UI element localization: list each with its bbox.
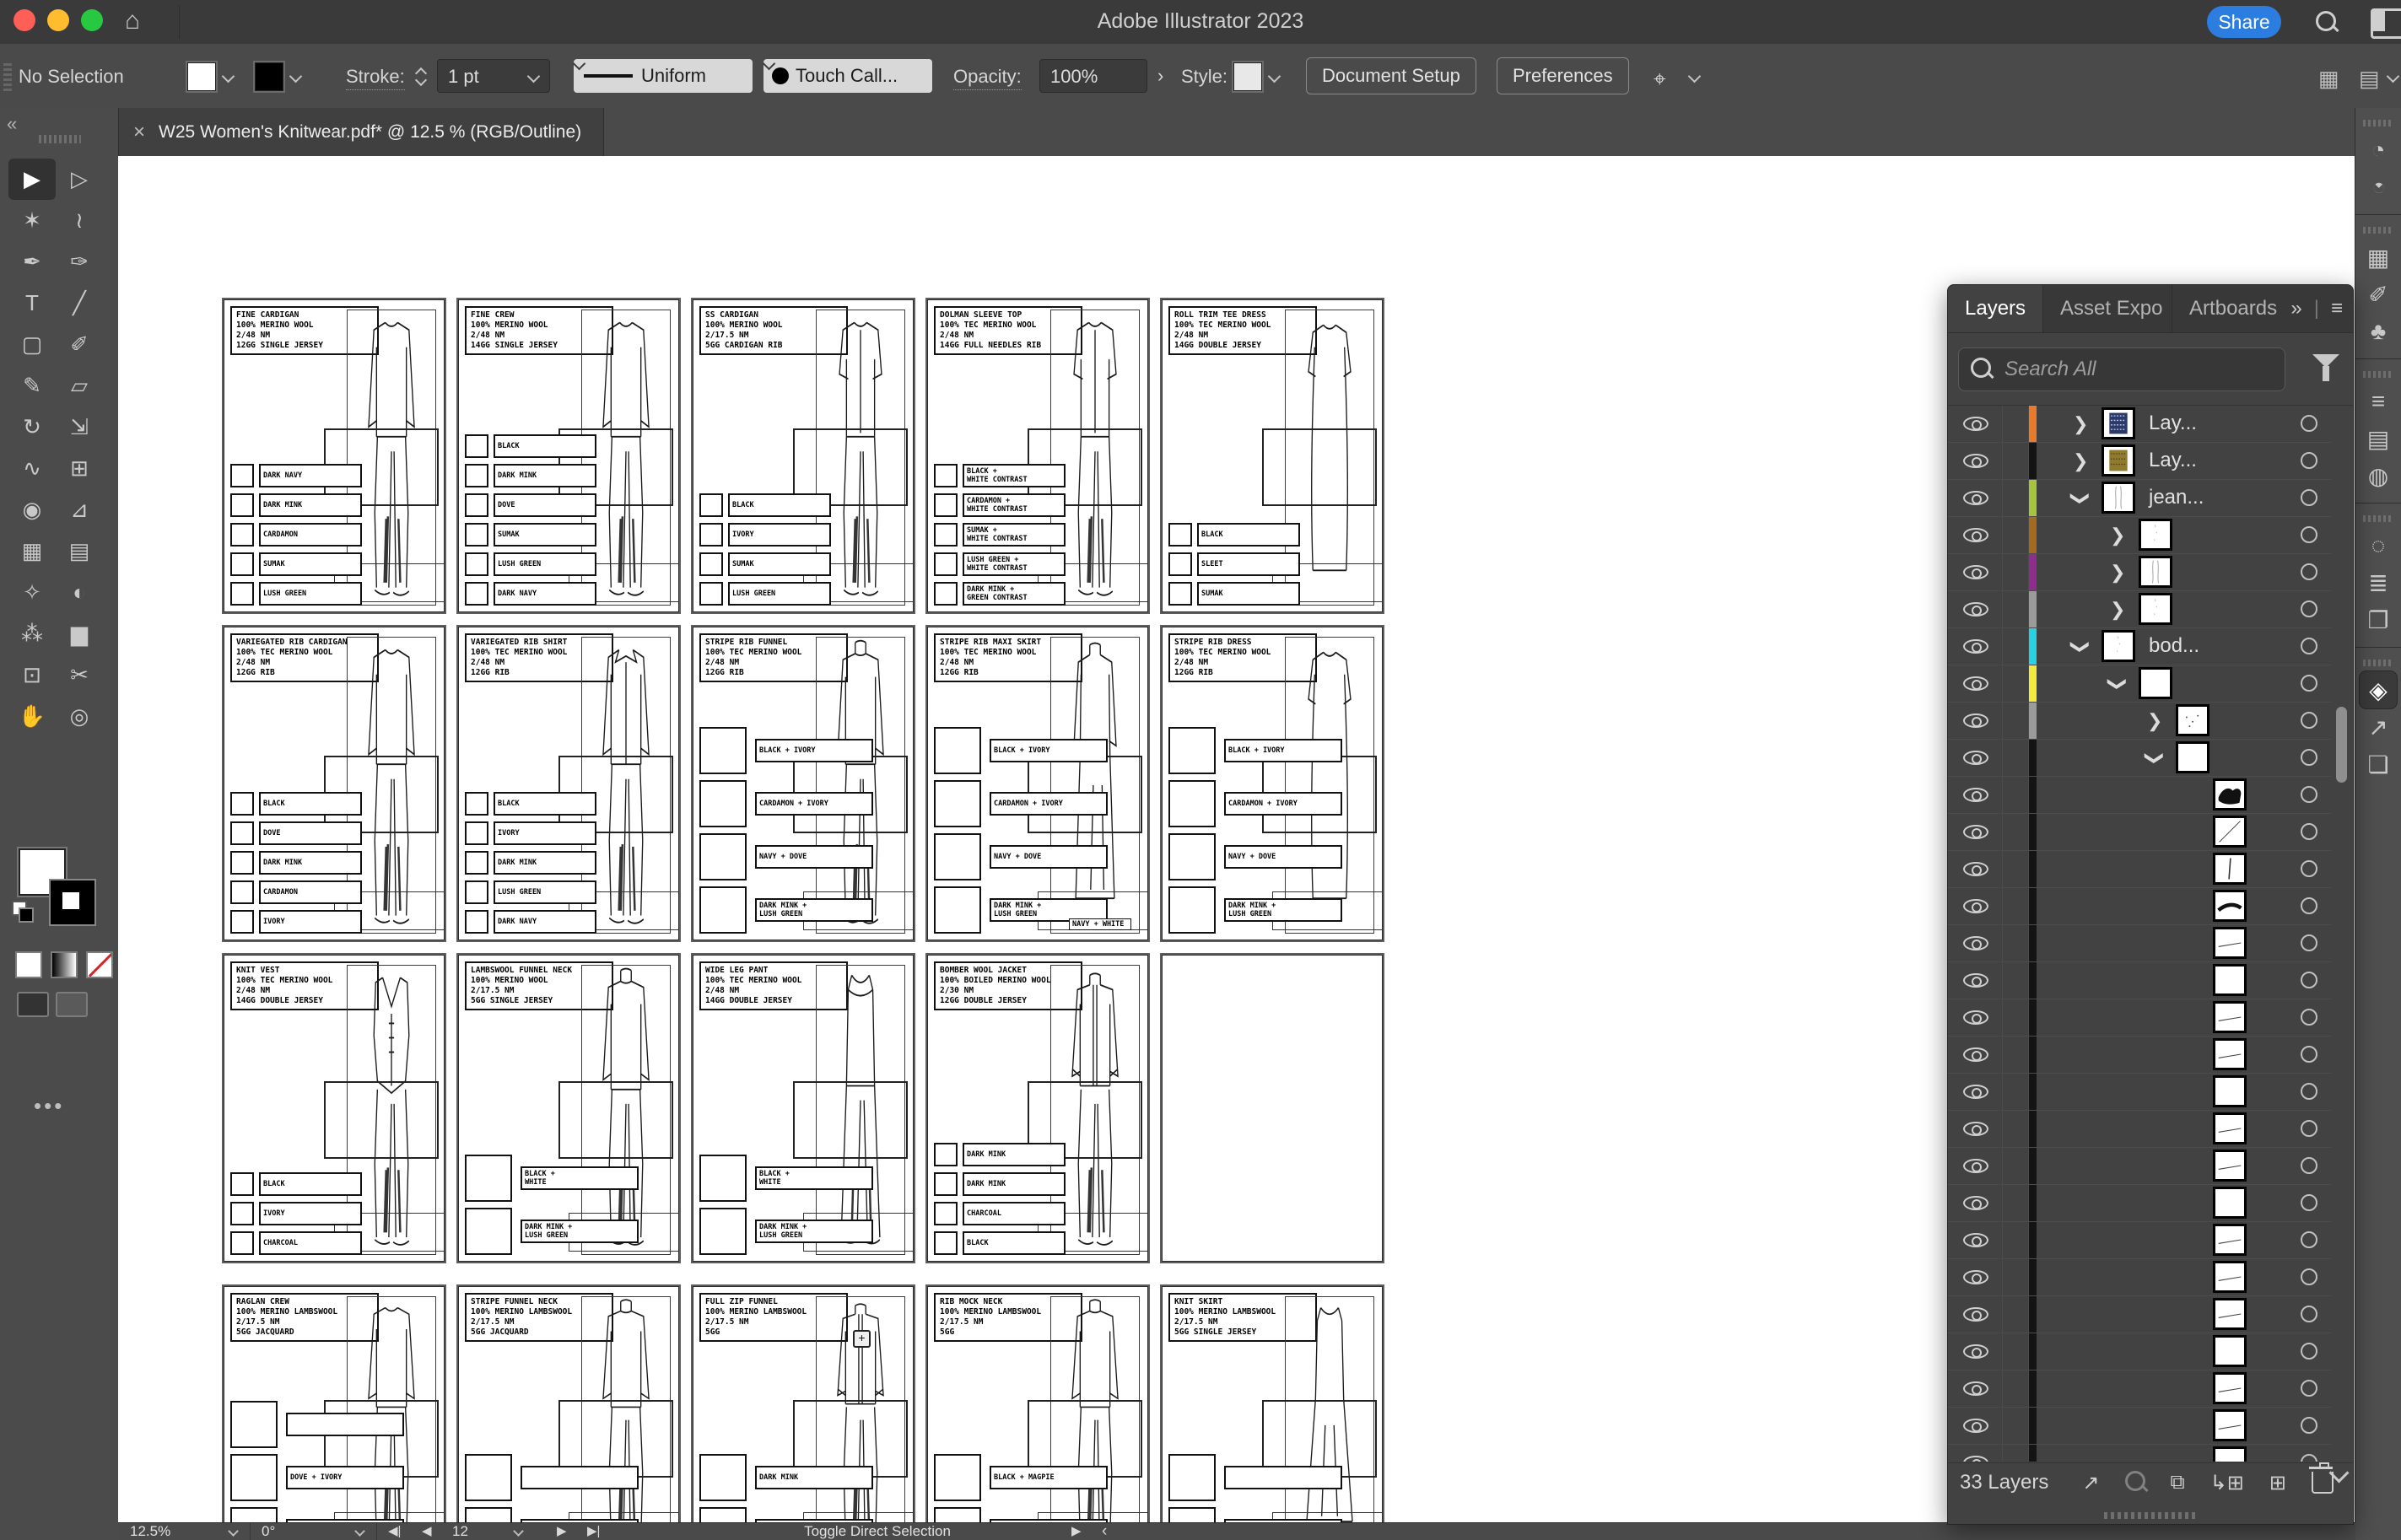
- workspace-switcher-icon[interactable]: ▤: [2359, 66, 2380, 92]
- layer-target-icon[interactable]: [2301, 1194, 2317, 1211]
- layer-row[interactable]: [1948, 1185, 2331, 1222]
- color-swatch: [465, 434, 488, 458]
- zoom-tool-icon[interactable]: ◎: [56, 696, 103, 737]
- status-play-icon[interactable]: ▶: [1071, 1523, 1082, 1540]
- arrange-documents-icon[interactable]: ▦: [2318, 66, 2339, 92]
- layer-target-icon[interactable]: [2301, 1417, 2317, 1434]
- artboard-card[interactable]: [1160, 953, 1384, 1263]
- artboard-tool-icon[interactable]: ⊡: [8, 654, 56, 696]
- gradient-panel-icon[interactable]: ▤: [2360, 420, 2397, 457]
- expand-arrow-icon[interactable]: ❯: [2147, 710, 2162, 732]
- color-label: BLACK: [963, 1231, 1066, 1255]
- layer-color-bar: [2029, 1222, 2037, 1258]
- artboard-card[interactable]: BOMBER WOOL JACKET100% BOILED MERINO WOO…: [925, 953, 1150, 1263]
- layer-thumbnail[interactable]: [2176, 741, 2209, 773]
- stroke-label[interactable]: Stroke:: [346, 66, 405, 90]
- layer-target-icon[interactable]: [2301, 526, 2317, 543]
- visibility-eye-icon[interactable]: [1963, 862, 1988, 876]
- visibility-eye-icon[interactable]: [1963, 417, 1988, 431]
- layer-target-icon[interactable]: [2301, 1083, 2317, 1100]
- layer-thumbnail[interactable]: [2213, 890, 2247, 922]
- layer-thumbnail[interactable]: [2213, 964, 2247, 996]
- artboard-card[interactable]: FULL ZIP FUNNEL100% MERINO LAMBSWOOL2/17…: [691, 1284, 915, 1540]
- color-label-line: LUSH GREEN +: [967, 556, 1061, 564]
- layers-panel-icon[interactable]: ◈: [2360, 671, 2397, 708]
- artboards-panel-icon[interactable]: ❏: [2360, 746, 2397, 783]
- colorway-row: DARK NAVY: [465, 910, 596, 934]
- opacity-expand-icon[interactable]: ›: [1157, 67, 1163, 84]
- layers-footer: 33 Layers ↗ ⧉ ↳⊞ ⊞: [1948, 1462, 2353, 1502]
- edit-toolbar-icon[interactable]: •••: [34, 1093, 64, 1119]
- layer-target-icon[interactable]: [2301, 563, 2317, 580]
- artboard-caret-icon[interactable]: [515, 1527, 523, 1536]
- layer-color-bar: [2029, 1408, 2037, 1444]
- asset-export-panel-icon[interactable]: ↗: [2360, 708, 2397, 746]
- visibility-eye-icon[interactable]: [1963, 1344, 1988, 1359]
- layer-target-icon[interactable]: [2301, 712, 2317, 729]
- perspective-grid-tool-icon[interactable]: ⊿: [56, 489, 103, 530]
- expand-arrow-icon[interactable]: ❯: [2110, 525, 2125, 547]
- stroke-weight-caret-icon[interactable]: [528, 72, 538, 82]
- preferences-button[interactable]: Preferences: [1497, 57, 1629, 94]
- layer-target-icon[interactable]: [2301, 1009, 2317, 1026]
- color-label: DARK NAVY: [494, 910, 596, 934]
- layer-row[interactable]: ❯jean...: [1948, 480, 2331, 517]
- transparency-panel-icon[interactable]: ◍: [2360, 457, 2397, 494]
- tools-grip[interactable]: [39, 135, 81, 143]
- layer-target-icon[interactable]: [2301, 1046, 2317, 1063]
- layer-name[interactable]: jean...: [2149, 486, 2204, 509]
- layer-target-icon[interactable]: [2301, 452, 2317, 469]
- delete-layer-icon[interactable]: [2312, 1472, 2334, 1494]
- colorway-list: DARK MINK +LUSH GREENBLACK +WHITE: [465, 1155, 639, 1255]
- layer-row[interactable]: [1948, 1111, 2331, 1148]
- color-label: NAVY + DOVE: [990, 845, 1108, 869]
- search-icon[interactable]: [2316, 11, 2336, 31]
- layer-target-icon[interactable]: [2301, 1157, 2317, 1174]
- stroke-weight-stepper[interactable]: [415, 64, 427, 89]
- layer-row[interactable]: [1948, 999, 2331, 1037]
- artboard-card[interactable]: RAGLAN CREW100% MERINO LAMBSWOOL2/17.5 N…: [222, 1284, 446, 1540]
- artboard-card[interactable]: RIB MOCK NECK100% MERINO LAMBSWOOL2/17.5…: [925, 1284, 1150, 1540]
- layer-row[interactable]: [1948, 1370, 2331, 1408]
- layer-thumbnail[interactable]: [2139, 519, 2172, 551]
- color-label-line: WHITE: [525, 1178, 634, 1187]
- colorway-row: DARK MINK +GREEN CONTRAST: [934, 582, 1066, 606]
- layer-name[interactable]: Lay...: [2149, 449, 2197, 472]
- tab-close-icon[interactable]: ×: [133, 121, 145, 144]
- dock-grip[interactable]: [2363, 515, 2393, 522]
- layer-target-icon[interactable]: [2301, 1306, 2317, 1322]
- layer-target-icon[interactable]: [2301, 934, 2317, 951]
- color-guide-panel-icon[interactable]: ◔: [2352, 161, 2401, 213]
- layer-thumbnail[interactable]: [2102, 482, 2135, 514]
- layer-row[interactable]: ❯Lay...: [1948, 406, 2331, 443]
- visibility-eye-icon[interactable]: [1963, 713, 1988, 728]
- visibility-eye-icon[interactable]: [1963, 1307, 1988, 1322]
- stroke-caret-icon[interactable]: [290, 72, 300, 82]
- pattern-overlay-box: [1262, 428, 1377, 506]
- artboard-card[interactable]: DOLMAN SLEEVE TOP100% TEC MERINO WOOL2/4…: [925, 298, 1150, 614]
- layer-thumbnail[interactable]: [2213, 1112, 2247, 1144]
- visibility-eye-icon[interactable]: [1963, 1233, 1988, 1247]
- artboard-card[interactable]: ROLL TRIM TEE DRESS100% TEC MERINO WOOL2…: [1160, 298, 1384, 614]
- transform-panel-icon[interactable]: ❐: [2360, 601, 2397, 638]
- workspace-caret-icon[interactable]: [2388, 72, 2398, 82]
- layer-thumbnail[interactable]: [2213, 1372, 2247, 1404]
- layer-row[interactable]: [1948, 1333, 2331, 1370]
- visibility-eye-icon[interactable]: [1963, 1456, 1988, 1462]
- symbols-panel-icon[interactable]: ♣: [2360, 313, 2397, 350]
- layer-target-icon[interactable]: [2301, 675, 2317, 692]
- color-label: DARK MINK +LUSH GREEN: [1224, 898, 1342, 922]
- visibility-eye-icon[interactable]: [1963, 973, 1988, 988]
- color-label: DARK MINK +LUSH GREEN: [755, 1220, 873, 1243]
- filter-icon[interactable]: [2312, 354, 2339, 368]
- artboard-card[interactable]: STRIPE RIB DRESS100% TEC MERINO WOOL2/48…: [1160, 625, 1384, 942]
- rectangle-tool-icon[interactable]: ▢: [8, 324, 56, 365]
- variable-width-profile[interactable]: Uniform: [574, 59, 753, 93]
- layer-thumbnail[interactable]: [2213, 1075, 2247, 1107]
- layer-thumbnail[interactable]: [2176, 704, 2209, 736]
- visibility-eye-icon[interactable]: [1963, 491, 1988, 505]
- tab-layers[interactable]: Layers: [1948, 285, 2043, 332]
- artboard-card[interactable]: STRIPE RIB FUNNEL100% TEC MERINO WOOL2/4…: [691, 625, 915, 942]
- blend-tool-icon[interactable]: ◐: [56, 572, 103, 613]
- layer-thumbnail[interactable]: [2213, 816, 2247, 848]
- layer-thumbnail[interactable]: [2213, 1409, 2247, 1441]
- zoom-caret-icon[interactable]: [229, 1527, 238, 1536]
- shaper-tool-icon[interactable]: ✎: [8, 365, 56, 407]
- layer-row[interactable]: ❯: [1948, 517, 2331, 554]
- layer-row[interactable]: [1948, 814, 2331, 851]
- color-swatch: [934, 582, 958, 606]
- previous-artboard-icon[interactable]: ◀: [422, 1523, 432, 1540]
- layer-row[interactable]: [1948, 1296, 2331, 1333]
- line-segment-tool-icon[interactable]: ╱: [56, 283, 103, 324]
- color-label: BLACK +WHITE CONTRAST: [963, 464, 1066, 487]
- drawing-mode-buttons: [17, 992, 88, 1017]
- layers-scrollbar-thumb[interactable]: [2336, 707, 2347, 783]
- expand-arrow-icon[interactable]: ❯: [2110, 599, 2125, 621]
- direct-selection-tool-icon[interactable]: ▷: [56, 159, 103, 200]
- lasso-tool-icon[interactable]: ≀: [56, 200, 103, 241]
- expand-arrow-icon[interactable]: ❯: [2110, 562, 2125, 584]
- tab-asset-expo[interactable]: Asset Expo: [2043, 285, 2172, 332]
- layer-row[interactable]: ❯: [1948, 665, 2331, 703]
- layer-target-icon[interactable]: [2301, 823, 2317, 840]
- next-artboard-icon[interactable]: ▶: [557, 1523, 567, 1540]
- collapse-panel-icon[interactable]: «: [7, 113, 15, 135]
- collapse-arrow-icon[interactable]: ❯: [2107, 676, 2129, 692]
- column-graph-tool-icon[interactable]: ▆: [56, 613, 103, 654]
- panel-expand-icon[interactable]: »: [2290, 297, 2301, 320]
- layer-target-icon[interactable]: [2301, 600, 2317, 617]
- expand-plus-icon[interactable]: +: [853, 1330, 871, 1348]
- visibility-eye-icon[interactable]: [1963, 676, 1988, 691]
- layer-thumbnail[interactable]: [2213, 1224, 2247, 1256]
- color-swatch: [699, 727, 747, 774]
- color-label: BLACK +WHITE: [521, 1166, 639, 1190]
- opacity-label[interactable]: Opacity:: [953, 66, 1022, 90]
- css-properties-panel-icon[interactable]: ◌: [2360, 527, 2397, 564]
- layer-target-icon[interactable]: [2301, 415, 2317, 432]
- type-tool-icon[interactable]: T: [8, 283, 56, 324]
- layer-row[interactable]: [1948, 1408, 2331, 1445]
- fill-caret-icon[interactable]: [223, 72, 233, 82]
- layer-row[interactable]: ❯: [1948, 703, 2331, 740]
- artboard-card[interactable]: VARIEGATED RIB CARDIGAN100% TEC MERINO W…: [222, 625, 446, 942]
- layer-target-icon[interactable]: [2301, 786, 2317, 803]
- colorway-row: IVORY: [465, 821, 596, 845]
- zoom-level[interactable]: 12.5%: [130, 1523, 170, 1540]
- first-artboard-icon[interactable]: ◀|: [388, 1523, 401, 1540]
- expand-arrow-icon[interactable]: ❯: [2073, 413, 2088, 435]
- visibility-eye-icon[interactable]: [1963, 528, 1988, 542]
- layer-row[interactable]: [1948, 851, 2331, 888]
- none-button[interactable]: [86, 951, 113, 978]
- select-similar-caret-icon[interactable]: [1689, 72, 1699, 82]
- artboard-card[interactable]: VARIEGATED RIB SHIRT100% TEC MERINO WOOL…: [456, 625, 681, 942]
- symbol-sprayer-tool-icon[interactable]: ⁂: [8, 613, 56, 654]
- visibility-eye-icon[interactable]: [1963, 602, 1988, 617]
- visibility-eye-icon[interactable]: [1963, 1085, 1988, 1099]
- visibility-eye-icon[interactable]: [1963, 454, 1988, 468]
- layer-thumbnail[interactable]: [2102, 407, 2135, 439]
- color-label-line: CHARCOAL: [967, 1209, 1061, 1218]
- select-similar-icon[interactable]: ⌖: [1654, 66, 1666, 93]
- style-caret-icon[interactable]: [1269, 72, 1279, 82]
- artboard-card[interactable]: STRIPE RIB MAXI SKIRT100% TEC MERINO WOO…: [925, 625, 1150, 942]
- visibility-eye-icon[interactable]: [1963, 1122, 1988, 1136]
- share-button[interactable]: Share: [2207, 6, 2281, 38]
- layer-color-bar: [2029, 777, 2037, 813]
- layer-row[interactable]: ❯: [1948, 591, 2331, 628]
- layer-name[interactable]: Lay...: [2149, 412, 2197, 435]
- layer-thumbnail[interactable]: [2102, 630, 2135, 662]
- layer-name[interactable]: bod...: [2149, 634, 2199, 658]
- tab-artboards[interactable]: Artboards: [2172, 285, 2295, 332]
- layer-thumbnail[interactable]: [2213, 853, 2247, 885]
- color-button[interactable]: [15, 951, 42, 978]
- curvature-tool-icon[interactable]: ✑: [56, 241, 103, 283]
- status-readout[interactable]: Toggle Direct Selection: [709, 1523, 1046, 1540]
- layer-row[interactable]: ❯: [1948, 740, 2331, 777]
- visibility-eye-icon[interactable]: [1963, 639, 1988, 654]
- align-panel-icon[interactable]: ≣: [2360, 564, 2397, 601]
- layer-row[interactable]: [1948, 925, 2331, 962]
- layer-target-icon[interactable]: [2301, 1120, 2317, 1137]
- visibility-eye-icon[interactable]: [1963, 1270, 1988, 1284]
- hand-tool-icon[interactable]: ✋: [8, 696, 56, 737]
- layer-thumbnail[interactable]: [2213, 1335, 2247, 1367]
- color-label-line: IVORY: [263, 918, 358, 926]
- dock-grip[interactable]: [2363, 660, 2393, 666]
- gradient-tool-icon[interactable]: ▤: [56, 530, 103, 572]
- color-label-line: BLACK: [498, 442, 592, 450]
- layer-thumbnail[interactable]: [2139, 667, 2172, 699]
- expand-arrow-icon[interactable]: ❯: [2073, 450, 2088, 472]
- layer-target-icon[interactable]: [2301, 1268, 2317, 1285]
- color-swatch: [465, 582, 488, 606]
- artboard-card[interactable]: FINE CREW100% MERINO WOOL2/48 NM14GG SIN…: [456, 298, 681, 614]
- artboard-card[interactable]: KNIT SKIRT100% MERINO LAMBSWOOL2/17.5 NM…: [1160, 1284, 1384, 1540]
- colorway-row: BLACK: [1168, 523, 1300, 547]
- style-swatch[interactable]: [1233, 62, 1262, 91]
- last-artboard-icon[interactable]: ▶|: [587, 1523, 600, 1540]
- color-swatch: [699, 833, 747, 880]
- document-tab[interactable]: × W25 Women's Knitwear.pdf* @ 12.5 % (RG…: [118, 108, 604, 156]
- eraser-tool-icon[interactable]: ▱: [56, 365, 103, 407]
- artboard-card[interactable]: WIDE LEG PANT100% TEC MERINO WOOL2/48 NM…: [691, 953, 915, 1263]
- make-mask-icon[interactable]: ⧉: [2171, 1471, 2185, 1494]
- layer-target-icon[interactable]: [2301, 489, 2317, 506]
- document-setup-button[interactable]: Document Setup: [1306, 57, 1476, 94]
- visibility-eye-icon[interactable]: [1963, 1047, 1988, 1062]
- locate-object-icon[interactable]: [2125, 1471, 2145, 1491]
- visibility-eye-icon[interactable]: [1963, 1010, 1988, 1025]
- color-swatch: [699, 1208, 747, 1255]
- selection-status: No Selection: [19, 66, 124, 88]
- stroke-swatch[interactable]: [49, 879, 96, 926]
- panel-resize-grip[interactable]: [2104, 1512, 2197, 1519]
- layer-thumbnail[interactable]: [2213, 1261, 2247, 1293]
- color-label-line: BLACK + IVORY: [759, 746, 869, 755]
- stroke-panel-icon[interactable]: ≡: [2360, 383, 2397, 420]
- layer-list: ❯Lay...❯Lay...❯jean...❯❯❯❯bod...❯❯❯: [1948, 405, 2353, 1462]
- layer-target-icon[interactable]: [2301, 897, 2317, 914]
- rotation-caret-icon[interactable]: [356, 1527, 364, 1536]
- artboard-card[interactable]: LAMBSWOOL FUNNEL NECK100% MERINO WOOL2/1…: [456, 953, 681, 1263]
- draw-behind-button[interactable]: [56, 992, 88, 1017]
- layer-target-icon[interactable]: [2301, 1454, 2317, 1462]
- default-fill-stroke-icon[interactable]: [12, 901, 34, 923]
- visibility-eye-icon[interactable]: [1963, 788, 1988, 802]
- artboard-card[interactable]: STRIPE FUNNEL NECK100% MERINO LAMBSWOOL2…: [456, 1284, 681, 1540]
- scale-tool-icon[interactable]: ⇲: [56, 407, 103, 448]
- layer-row[interactable]: [1948, 777, 2331, 814]
- layer-thumbnail[interactable]: [2139, 556, 2172, 588]
- visibility-eye-icon[interactable]: [1963, 825, 1988, 839]
- artboard-number[interactable]: 12: [452, 1523, 468, 1540]
- color-label: DOVE + IVORY: [286, 1466, 404, 1489]
- rotate-tool-icon[interactable]: ↻: [8, 407, 56, 448]
- visibility-eye-icon[interactable]: [1963, 1196, 1988, 1210]
- color-label: DARK MINK: [259, 493, 362, 517]
- layer-thumbnail[interactable]: [2102, 444, 2135, 477]
- layer-row[interactable]: [1948, 1222, 2331, 1259]
- collect-for-export-icon[interactable]: ↗: [2082, 1471, 2099, 1495]
- layer-color-bar: [2029, 740, 2037, 776]
- brushes-panel-icon[interactable]: ✐: [2360, 276, 2397, 313]
- colorway-row: BLACK + MAGPIE: [934, 1454, 1108, 1501]
- layer-row[interactable]: ❯bod...: [1948, 628, 2331, 665]
- scroll-left-icon[interactable]: ‹: [1102, 1523, 1107, 1540]
- layer-thumbnail[interactable]: [2213, 1187, 2247, 1219]
- layer-row[interactable]: ❯Lay...: [1948, 443, 2331, 480]
- dock-grip[interactable]: [2363, 120, 2393, 127]
- paintbrush-tool-icon[interactable]: ✐: [56, 324, 103, 365]
- layer-row[interactable]: [1948, 1074, 2331, 1111]
- layer-target-icon[interactable]: [2301, 749, 2317, 766]
- layer-thumbnail[interactable]: [2139, 593, 2172, 625]
- new-layer-icon[interactable]: ⊞: [2269, 1471, 2286, 1495]
- brush-definition[interactable]: Touch Call...: [763, 59, 932, 93]
- visibility-eye-icon[interactable]: [1963, 899, 1988, 913]
- layer-thumbnail[interactable]: [2213, 1298, 2247, 1330]
- layer-target-icon[interactable]: [2301, 972, 2317, 988]
- collapse-arrow-icon[interactable]: ❯: [2069, 639, 2091, 654]
- workspace-layout-icon[interactable]: [2371, 8, 2401, 39]
- collapse-arrow-icon[interactable]: ❯: [2069, 491, 2091, 506]
- layer-thumbnail[interactable]: [2213, 1150, 2247, 1182]
- layer-thumbnail[interactable]: [2213, 1038, 2247, 1070]
- visibility-eye-icon[interactable]: [1963, 565, 1988, 579]
- artboard-card[interactable]: FINE CARDIGAN100% MERINO WOOL2/48 NM12GG…: [222, 298, 446, 614]
- color-label-line: BLACK: [263, 1180, 358, 1188]
- artboard-card[interactable]: SS CARDIGAN100% MERINO WOOL2/17.5 NM5GG …: [691, 298, 915, 614]
- layer-target-icon[interactable]: [2301, 860, 2317, 877]
- eyedropper-tool-icon[interactable]: ✧: [8, 572, 56, 613]
- layer-thumbnail[interactable]: [2213, 1446, 2247, 1462]
- color-label: IVORY: [259, 1202, 362, 1225]
- visibility-eye-icon[interactable]: [1963, 1419, 1988, 1433]
- dock-grip[interactable]: [2363, 227, 2393, 234]
- rotation-value[interactable]: 0°: [262, 1523, 275, 1540]
- mesh-tool-icon[interactable]: ▦: [8, 530, 56, 572]
- opacity-field[interactable]: 100%: [1039, 59, 1147, 93]
- fill-color-swatch[interactable]: [187, 62, 216, 91]
- colorway-row: BLACK: [934, 1231, 1066, 1255]
- layer-target-icon[interactable]: [2301, 1380, 2317, 1397]
- layer-target-icon[interactable]: [2301, 1343, 2317, 1360]
- layers-search-input[interactable]: Search All: [1958, 347, 2285, 391]
- dock-grip[interactable]: [2363, 371, 2393, 378]
- layer-thumbnail[interactable]: [2213, 778, 2247, 810]
- layer-target-icon[interactable]: [2301, 638, 2317, 654]
- collapse-arrow-icon[interactable]: ❯: [2144, 751, 2166, 766]
- layer-row[interactable]: [1948, 1445, 2331, 1462]
- visibility-eye-icon[interactable]: [1963, 1381, 1988, 1396]
- layer-row[interactable]: [1948, 1148, 2331, 1185]
- slice-tool-icon[interactable]: ✂: [56, 654, 103, 696]
- artboard-card[interactable]: KNIT VEST100% TEC MERINO WOOL2/48 NM14GG…: [222, 953, 446, 1263]
- layer-row[interactable]: ❯: [1948, 554, 2331, 591]
- layer-row[interactable]: [1948, 962, 2331, 999]
- swatches-panel-icon[interactable]: ▦: [2360, 239, 2397, 276]
- new-sublayer-icon[interactable]: ↳⊞: [2210, 1471, 2244, 1495]
- visibility-eye-icon[interactable]: [1963, 751, 1988, 765]
- free-transform-tool-icon[interactable]: ⊞: [56, 448, 103, 489]
- shape-builder-tool-icon[interactable]: ◉: [8, 489, 56, 530]
- stroke-color-swatch[interactable]: [255, 62, 283, 91]
- magic-wand-tool-icon[interactable]: ✶: [8, 200, 56, 241]
- layer-row[interactable]: [1948, 888, 2331, 925]
- layer-row[interactable]: [1948, 1037, 2331, 1074]
- panel-menu-icon[interactable]: ≡: [2331, 297, 2343, 320]
- layer-target-icon[interactable]: [2301, 1231, 2317, 1248]
- width-tool-icon[interactable]: ∿: [8, 448, 56, 489]
- selection-tool-icon[interactable]: ▶: [8, 159, 56, 200]
- visibility-eye-icon[interactable]: [1963, 1159, 1988, 1173]
- draw-normal-button[interactable]: [17, 992, 49, 1017]
- layer-thumbnail[interactable]: [2213, 927, 2247, 959]
- visibility-eye-icon[interactable]: [1963, 936, 1988, 950]
- pen-tool-icon[interactable]: ✒: [8, 241, 56, 283]
- layer-row[interactable]: [1948, 1259, 2331, 1296]
- gradient-button[interactable]: [51, 951, 78, 978]
- layer-thumbnail[interactable]: [2213, 1001, 2247, 1033]
